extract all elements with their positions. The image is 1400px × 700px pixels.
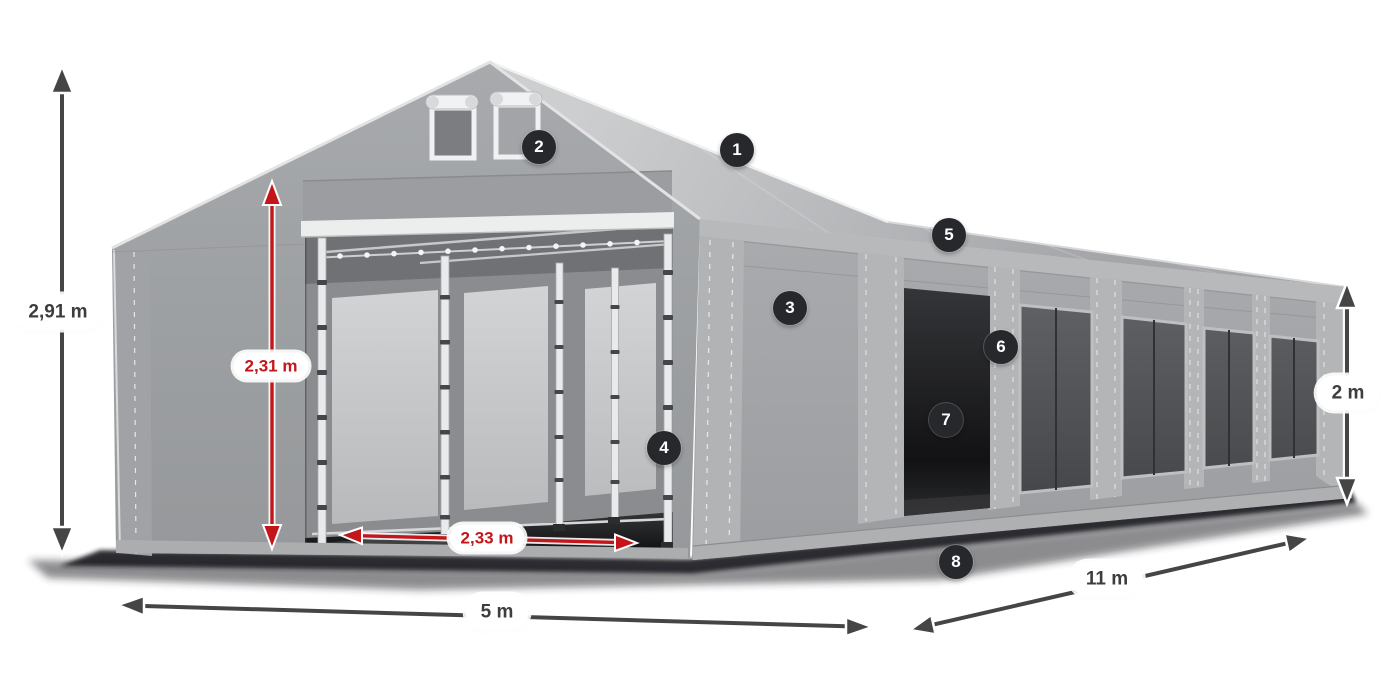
vent-left (426, 95, 478, 158)
interior-window (585, 283, 656, 496)
dimension-label-front-width: 5 m (466, 595, 529, 630)
dimension-label-total-height: 2,91 m (13, 295, 102, 330)
dimension-label-entrance-height: 2,31 m (234, 353, 309, 380)
dimension-label-side-length: 11 m (1071, 562, 1143, 597)
tent-dimension-diagram: 2,91 m 2,31 m 2,33 m 5 m 11 m 2 m 1 2 3 … (0, 0, 1400, 700)
callout-badge-8[interactable]: 8 (939, 545, 973, 579)
dimension-label-entrance-width: 2,33 m (450, 525, 525, 552)
dimension-label-side-height: 2 m (1317, 376, 1380, 411)
callout-badge-3[interactable]: 3 (773, 291, 807, 325)
side-window (1270, 336, 1318, 460)
entrance-interior (300, 220, 680, 560)
side-window (1020, 305, 1092, 493)
callout-badge-5[interactable]: 5 (932, 218, 966, 252)
interior-window (464, 286, 548, 510)
callout-badge-4[interactable]: 4 (647, 431, 681, 465)
interior-window (332, 290, 438, 524)
side-window (1204, 328, 1254, 468)
callout-badge-1[interactable]: 1 (720, 133, 754, 167)
callout-badge-6[interactable]: 6 (984, 330, 1018, 364)
callout-badge-2[interactable]: 2 (522, 130, 556, 164)
tent-illustration (0, 0, 1400, 700)
side-door-opening (904, 288, 990, 516)
callout-badge-7[interactable]: 7 (929, 403, 963, 437)
side-corner-pillar (693, 236, 744, 560)
side-window (1122, 317, 1186, 478)
